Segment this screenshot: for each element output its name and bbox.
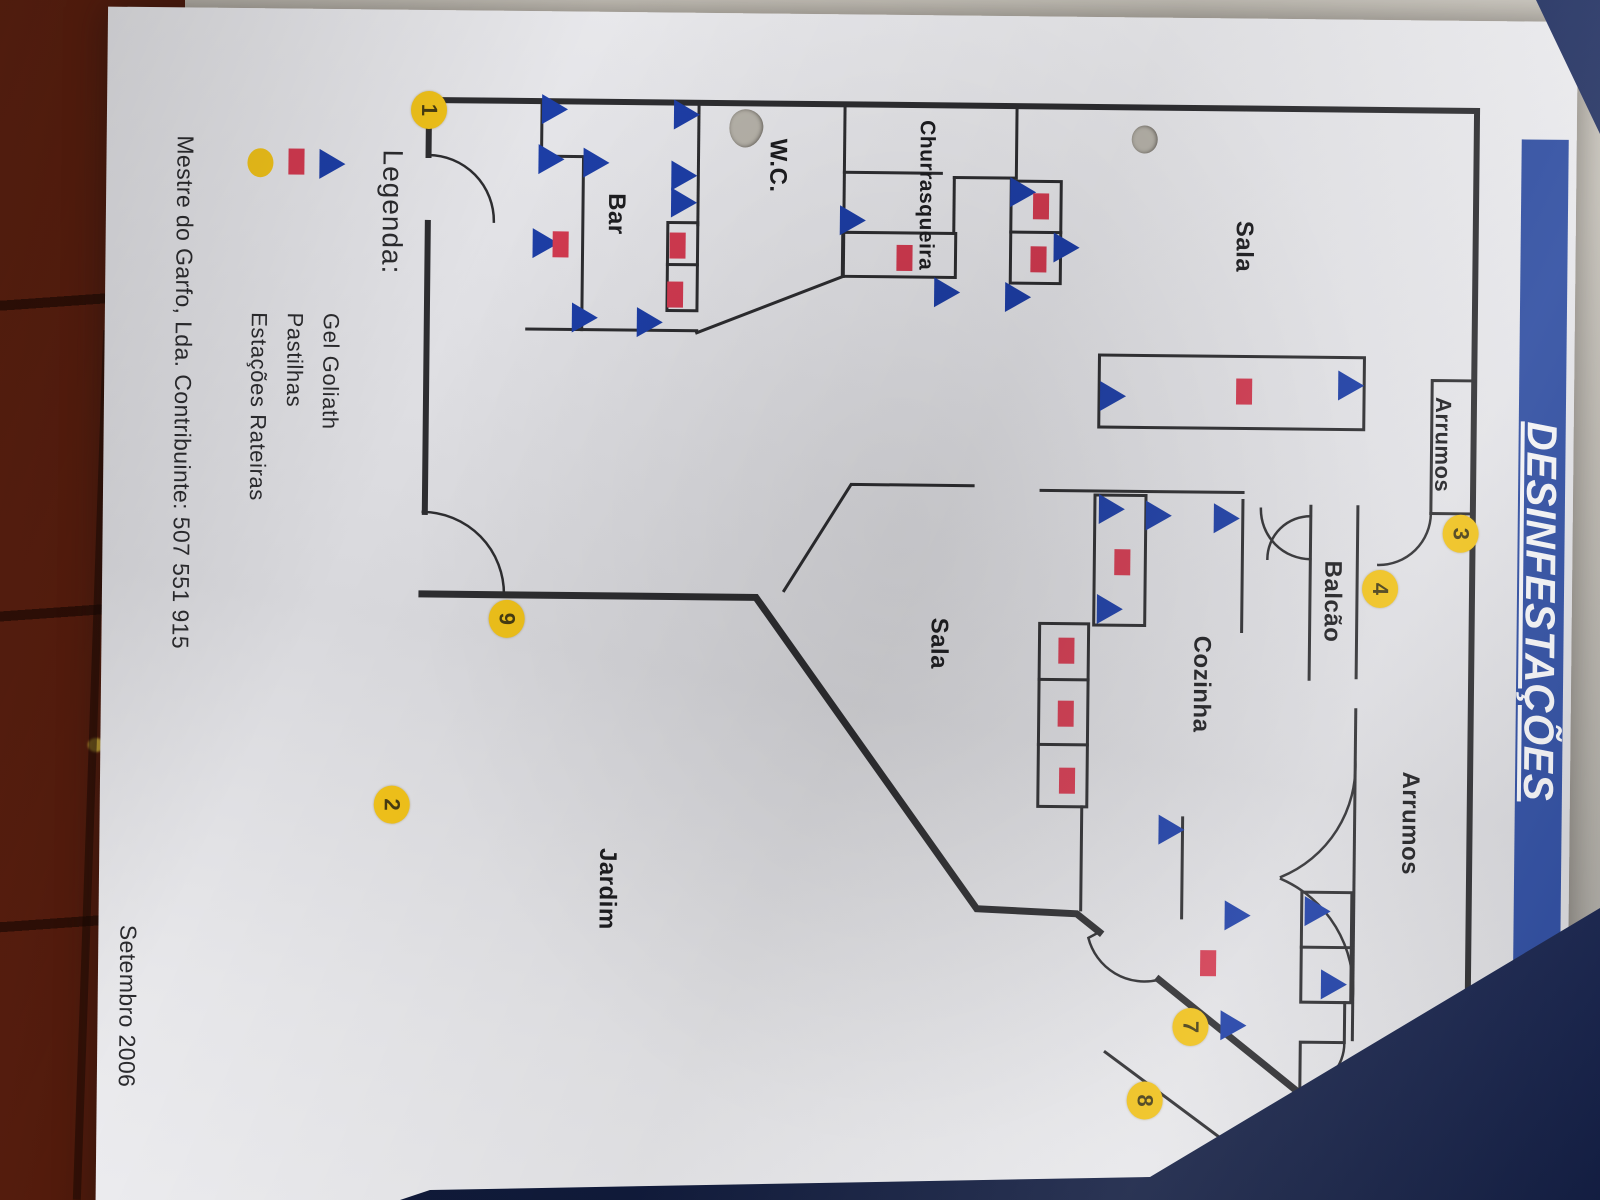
rat-station-9: 9 bbox=[488, 600, 524, 638]
gel-goliath-marker bbox=[1214, 503, 1240, 533]
gel-goliath-marker bbox=[583, 148, 609, 178]
gel-goliath-marker bbox=[1053, 233, 1079, 263]
gel-goliath-marker bbox=[1005, 282, 1031, 312]
room-label-sala-2: Sala bbox=[924, 618, 953, 670]
gel-goliath-marker bbox=[542, 94, 568, 124]
legend: Legenda: Gel GoliathPastilhasEstações Ra… bbox=[239, 148, 409, 502]
pastilha-marker bbox=[1033, 193, 1049, 219]
gel-goliath-marker bbox=[674, 100, 700, 130]
triangle-glyph bbox=[319, 149, 345, 179]
pastilha-marker bbox=[552, 231, 568, 257]
pastilha-marker bbox=[1058, 701, 1074, 727]
legend-item-square: Pastilhas bbox=[275, 148, 315, 501]
room-label-jardim: Jardim bbox=[592, 848, 621, 930]
rat-station-6: 6 bbox=[1280, 1101, 1316, 1139]
gel-goliath-marker bbox=[671, 161, 697, 191]
room-label-balcao: Balcão bbox=[1317, 560, 1346, 642]
gel-goliath-marker bbox=[572, 302, 598, 332]
gel-goliath-marker bbox=[1099, 494, 1125, 524]
rat-station-3: 3 bbox=[1442, 515, 1478, 553]
room-label-cozinha: Cozinha bbox=[1187, 636, 1216, 733]
room-label-churrasqueira: Churrasqueira bbox=[913, 120, 939, 270]
pastilha-marker bbox=[1058, 638, 1074, 664]
rat-station-4: 4 bbox=[1362, 570, 1398, 608]
pastilha-marker bbox=[667, 281, 683, 307]
gel-goliath-marker bbox=[1224, 900, 1250, 930]
room-label-wc: W.C. bbox=[763, 138, 792, 192]
room-label-arrumos-2: Arrumos bbox=[1395, 771, 1424, 875]
pastilha-icon bbox=[288, 149, 304, 195]
legend-label: Pastilhas bbox=[281, 194, 309, 407]
gel-goliath-icon bbox=[319, 149, 345, 195]
gel-goliath-marker bbox=[538, 144, 564, 174]
pastilha-marker bbox=[669, 233, 685, 259]
gel-goliath-marker bbox=[1338, 371, 1364, 401]
pastilha-marker bbox=[1030, 246, 1046, 272]
binder-hole bbox=[1132, 125, 1158, 153]
room-label-bar: Bar bbox=[602, 193, 630, 235]
room-label-sala-1: Sala bbox=[1229, 221, 1258, 273]
pastilha-marker bbox=[896, 245, 912, 271]
room-label-arrumos-1: Arrumos bbox=[1429, 397, 1456, 492]
gel-goliath-marker bbox=[1158, 815, 1184, 845]
gel-goliath-marker bbox=[1097, 594, 1123, 624]
rat-station-1: 1 bbox=[411, 91, 447, 129]
photographed-document-scene: DESINFESTAÇÕES bbox=[0, 0, 1600, 1200]
rat-station-icon bbox=[247, 148, 273, 194]
pastilha-marker bbox=[1200, 950, 1216, 976]
legend-label: Gel Goliath bbox=[317, 195, 345, 430]
gel-goliath-marker bbox=[1220, 1010, 1246, 1040]
gel-goliath-marker bbox=[637, 307, 663, 337]
gel-goliath-marker bbox=[1146, 501, 1172, 531]
gel-goliath-marker bbox=[1100, 381, 1126, 411]
rat-station-5: 5 bbox=[1348, 1105, 1384, 1143]
pastilha-marker bbox=[1114, 549, 1130, 575]
rat-station-8: 8 bbox=[1126, 1081, 1162, 1119]
gel-goliath-marker bbox=[1305, 896, 1331, 926]
gel-goliath-marker bbox=[1321, 969, 1347, 999]
legend-item-triangle: Gel Goliath bbox=[311, 149, 351, 502]
pastilha-marker bbox=[1059, 768, 1075, 794]
company-contact-line: Mestre do Garfo, Lda. Contribuinte: 507 … bbox=[166, 135, 198, 649]
pastilha-marker bbox=[1236, 378, 1252, 404]
square-glyph bbox=[288, 149, 304, 175]
gel-goliath-marker bbox=[671, 188, 697, 218]
legend-rows: Gel GoliathPastilhasEstações Rateiras bbox=[239, 148, 351, 502]
document-date: Setembro 2006 bbox=[113, 925, 142, 1088]
legend-item-circle: Estações Rateiras bbox=[239, 148, 279, 501]
gel-goliath-marker bbox=[934, 277, 960, 307]
gel-goliath-marker bbox=[840, 205, 866, 235]
legend-label: Estações Rateiras bbox=[244, 194, 273, 501]
legend-heading: Legenda: bbox=[373, 149, 409, 502]
rat-station-7: 7 bbox=[1172, 1008, 1208, 1046]
circle-glyph bbox=[247, 148, 273, 177]
rat-station-2: 2 bbox=[374, 785, 410, 823]
paper-document: DESINFESTAÇÕES bbox=[95, 7, 1578, 1200]
